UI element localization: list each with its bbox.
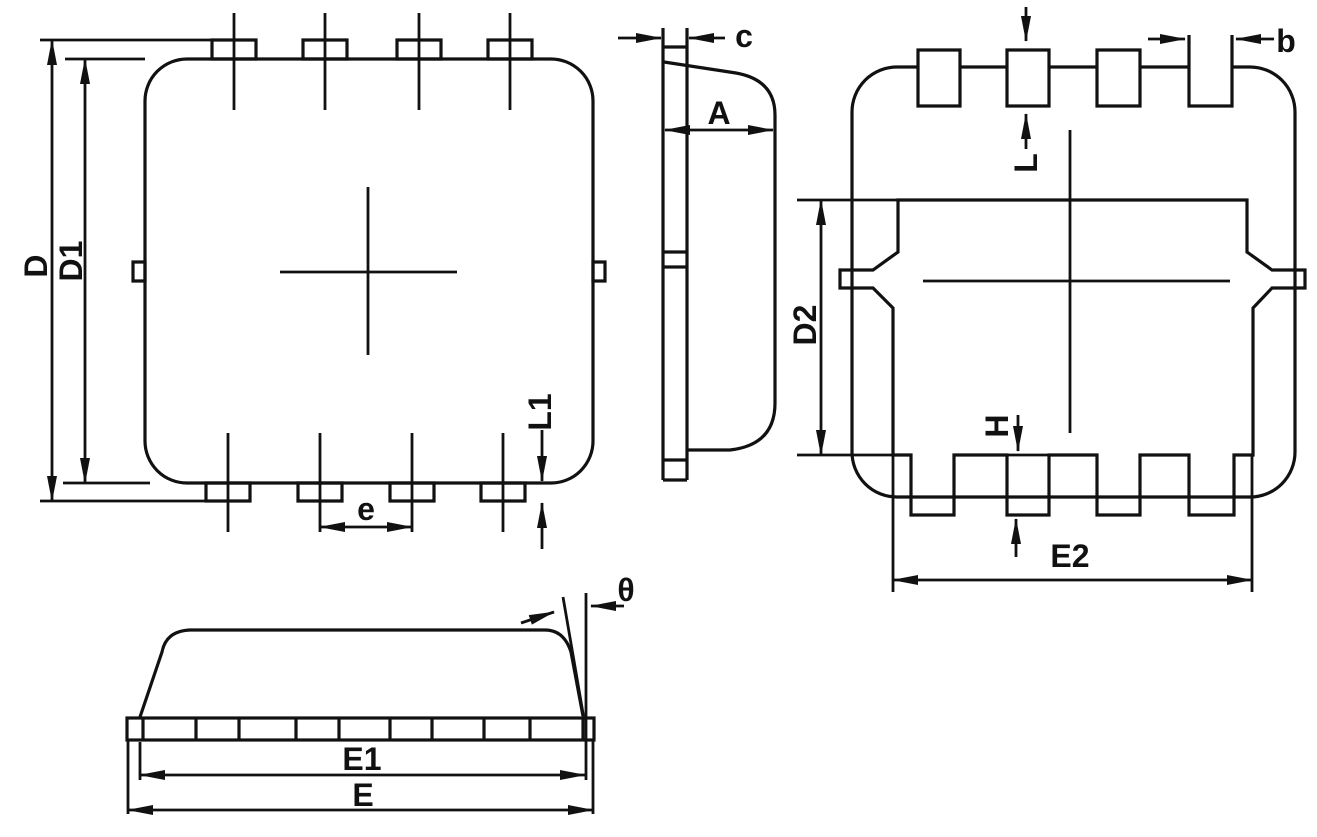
dim-label-e: e <box>357 491 375 527</box>
theta-slant-reference <box>563 597 584 719</box>
dim-label-theta: θ <box>617 572 634 608</box>
front-elevation-view: θ E1 E <box>127 572 635 814</box>
body-profile <box>140 630 583 717</box>
dim-label-l: L <box>1008 153 1044 173</box>
dim-label-e: E <box>352 777 373 813</box>
center-cross-mark <box>923 130 1230 433</box>
package-outline-drawing: D D1 L1 e c A b L D2 H E2 <box>0 0 1317 837</box>
top-view: D D1 L1 e <box>18 13 605 549</box>
dim-label-c: c <box>735 18 753 54</box>
top-lead-4-with-extensions <box>1189 35 1232 106</box>
lead-row-dividers <box>143 718 583 740</box>
dim-label-e2: E2 <box>1050 538 1089 574</box>
arrow-theta-slant <box>521 612 554 623</box>
dim-label-d1: D1 <box>53 241 89 282</box>
dim-label-l1: L1 <box>522 393 558 430</box>
dim-label-a: A <box>707 95 730 131</box>
top-edge-leads <box>212 40 532 59</box>
exposed-pad-outline <box>840 200 1305 515</box>
dim-label-b: b <box>1276 23 1296 59</box>
lead-frame-strip <box>663 28 687 480</box>
top-leads <box>918 50 1140 106</box>
dim-label-d: D <box>18 254 54 277</box>
center-cross-mark <box>280 187 457 355</box>
dim-label-e1: E1 <box>342 741 381 777</box>
side-view: c A <box>618 18 775 480</box>
dim-label-h: H <box>979 414 1015 437</box>
drawing-page: D D1 L1 e c A b L D2 H E2 <box>0 0 1317 837</box>
bottom-pad-view: b L D2 H E2 <box>787 7 1305 592</box>
dim-label-d2: D2 <box>787 305 823 346</box>
